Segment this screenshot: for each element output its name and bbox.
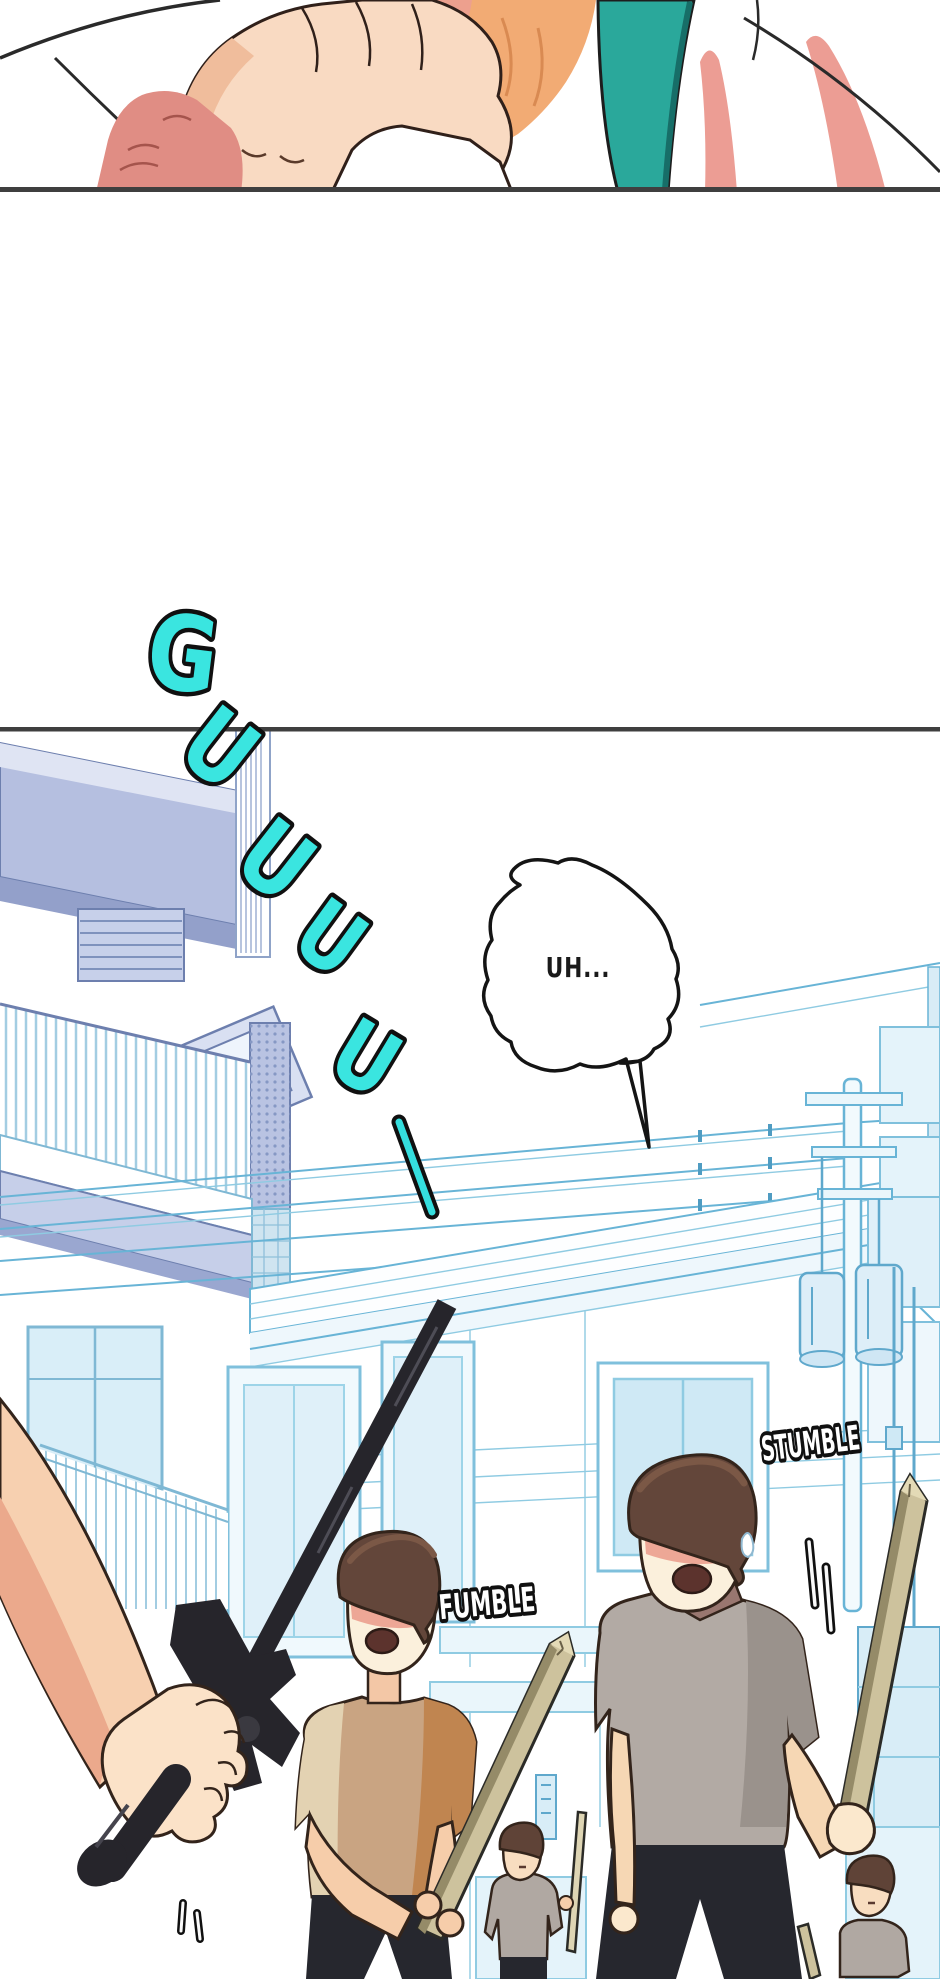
panel-street: UH...	[0, 727, 940, 1979]
panel1-border	[0, 187, 940, 192]
boy1-mouth	[366, 1629, 398, 1653]
sweat-drop	[742, 1533, 754, 1557]
panel2-border	[0, 727, 940, 732]
speech-text: UH...	[546, 951, 611, 983]
boy2-mouth	[673, 1565, 711, 1593]
boy2-left-arm	[610, 1729, 634, 1905]
comic-page: UH...	[0, 0, 940, 1979]
sfx-letter-g: G	[141, 591, 225, 719]
sfx-fumble: FUMBLE	[437, 1580, 536, 1628]
boy2-hand-grip	[827, 1804, 874, 1854]
panel-closeup	[0, 0, 940, 192]
